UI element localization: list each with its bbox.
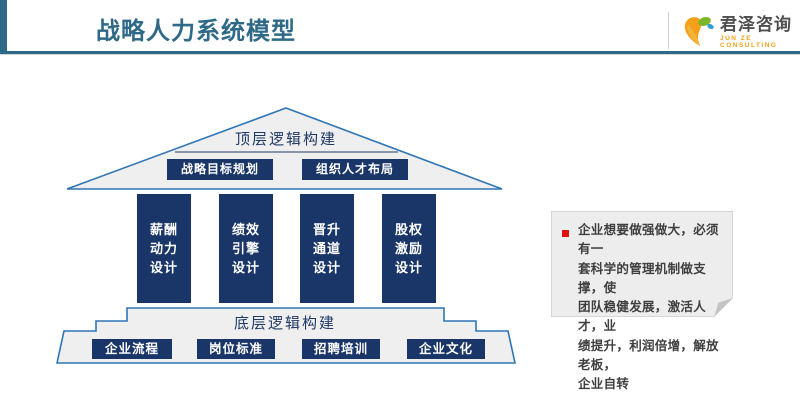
pillar-line: 动力 <box>150 239 178 258</box>
logo-name: 君泽咨询 <box>720 16 800 33</box>
pillar-line: 薪酬 <box>150 220 178 239</box>
pillar-line: 设计 <box>232 258 260 277</box>
base-box-recruit-training: 招聘培训 <box>302 339 380 359</box>
company-logo: 君泽咨询 JUN ZE CONSULTING <box>680 12 800 53</box>
logo-divider-line <box>668 12 669 49</box>
pillar-line: 股权 <box>395 220 423 239</box>
note-line: 团队稳健发展，激活人才，业 <box>578 298 728 337</box>
note-line: 绩提升，利润倍增，解放老板， <box>578 337 728 376</box>
pillar-performance: 绩效 引擎 设计 <box>219 194 273 303</box>
note-text: 企业想要做强做大，必须有一 套科学的管理机制做支撑，使 团队稳健发展，激活人才，… <box>578 221 728 395</box>
logo-heart-icon <box>680 12 716 53</box>
note-card: 企业想要做强做大，必须有一 套科学的管理机制做支撑，使 团队稳健发展，激活人才，… <box>551 211 733 317</box>
base-box-process: 企业流程 <box>92 339 172 359</box>
pillar-line: 设计 <box>313 258 341 277</box>
roof-box-org-talent: 组织人才布局 <box>302 159 408 180</box>
base-box-position-standard: 岗位标准 <box>197 339 275 359</box>
pillar-line: 绩效 <box>232 220 260 239</box>
slide: 战略人力系统模型 君泽咨询 JUN ZE CONSULTING 顶层逻辑构建 战… <box>0 0 800 401</box>
logo-text-block: 君泽咨询 JUN ZE CONSULTING <box>720 16 800 49</box>
roof-box-strategy-goal: 战略目标规划 <box>167 159 273 180</box>
base-label: 底层逻辑构建 <box>205 312 365 333</box>
pillar-line: 引擎 <box>232 239 260 258</box>
pillar-line: 设计 <box>150 258 178 277</box>
base-box-culture: 企业文化 <box>407 339 485 359</box>
note-line: 企业想要做强做大，必须有一 <box>578 221 728 260</box>
pillar-equity: 股权 激励 设计 <box>382 194 436 303</box>
logo-subtitle: JUN ZE CONSULTING <box>720 36 800 49</box>
pillar-line: 通道 <box>313 239 341 258</box>
roof-label: 顶层逻辑构建 <box>206 128 366 149</box>
title-accent-bar <box>0 0 7 53</box>
page-title: 战略人力系统模型 <box>96 11 296 46</box>
pillar-line: 设计 <box>395 258 423 277</box>
folded-corner-icon <box>714 298 733 317</box>
pillar-line: 激励 <box>395 239 423 258</box>
note-line: 企业自转 <box>578 375 728 394</box>
red-square-bullet-icon <box>562 230 569 237</box>
note-line: 套科学的管理机制做支撑，使 <box>578 260 728 299</box>
pillar-promotion: 晋升 通道 设计 <box>300 194 354 303</box>
pillar-line: 晋升 <box>313 220 341 239</box>
pillar-compensation: 薪酬 动力 设计 <box>137 194 191 303</box>
